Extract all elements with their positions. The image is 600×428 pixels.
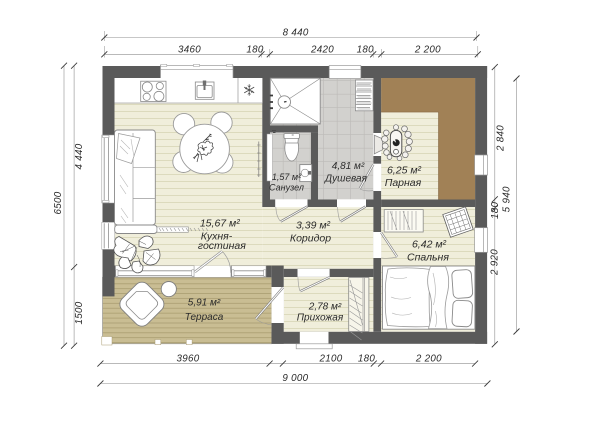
svg-text:3960: 3960 (177, 354, 200, 365)
svg-text:2 920: 2 920 (490, 249, 501, 276)
svg-text:180: 180 (246, 44, 263, 55)
svg-text:Терраса: Терраса (185, 312, 224, 323)
svg-text:3,39 м²: 3,39 м² (296, 220, 331, 232)
svg-text:9 000: 9 000 (282, 373, 308, 384)
svg-text:2420: 2420 (310, 44, 334, 55)
svg-text:2100: 2100 (319, 354, 343, 365)
svg-text:2 200: 2 200 (415, 354, 442, 365)
svg-text:Прихожая: Прихожая (297, 313, 344, 324)
svg-text:180: 180 (490, 202, 501, 219)
svg-text:Душевая: Душевая (324, 174, 368, 185)
svg-text:6,25 м²: 6,25 м² (387, 165, 422, 177)
svg-text:5,91 м²: 5,91 м² (188, 298, 221, 309)
svg-text:Спальня: Спальня (407, 252, 449, 264)
svg-text:4 440: 4 440 (74, 143, 85, 169)
svg-text:8 440: 8 440 (283, 27, 309, 38)
svg-text:15,67 м²: 15,67 м² (200, 218, 240, 230)
svg-text:180: 180 (358, 354, 375, 365)
svg-text:Коридор: Коридор (290, 233, 331, 245)
svg-text:Санузел: Санузел (269, 183, 304, 193)
svg-text:4,81 м²: 4,81 м² (332, 161, 365, 172)
svg-text:гостиная: гостиная (198, 240, 246, 252)
svg-text:1,57 м²: 1,57 м² (272, 172, 302, 182)
svg-text:5 940: 5 940 (501, 186, 512, 212)
svg-text:6500: 6500 (53, 191, 64, 214)
svg-text:2 840: 2 840 (496, 125, 507, 152)
svg-text:Парная: Парная (385, 177, 422, 189)
svg-text:2 200: 2 200 (414, 44, 441, 55)
svg-text:2,78 м²: 2,78 м² (308, 302, 342, 313)
svg-text:1500: 1500 (74, 301, 85, 324)
svg-text:3460: 3460 (178, 44, 201, 55)
svg-text:6,42 м²: 6,42 м² (412, 239, 447, 251)
svg-text:180: 180 (357, 44, 374, 55)
